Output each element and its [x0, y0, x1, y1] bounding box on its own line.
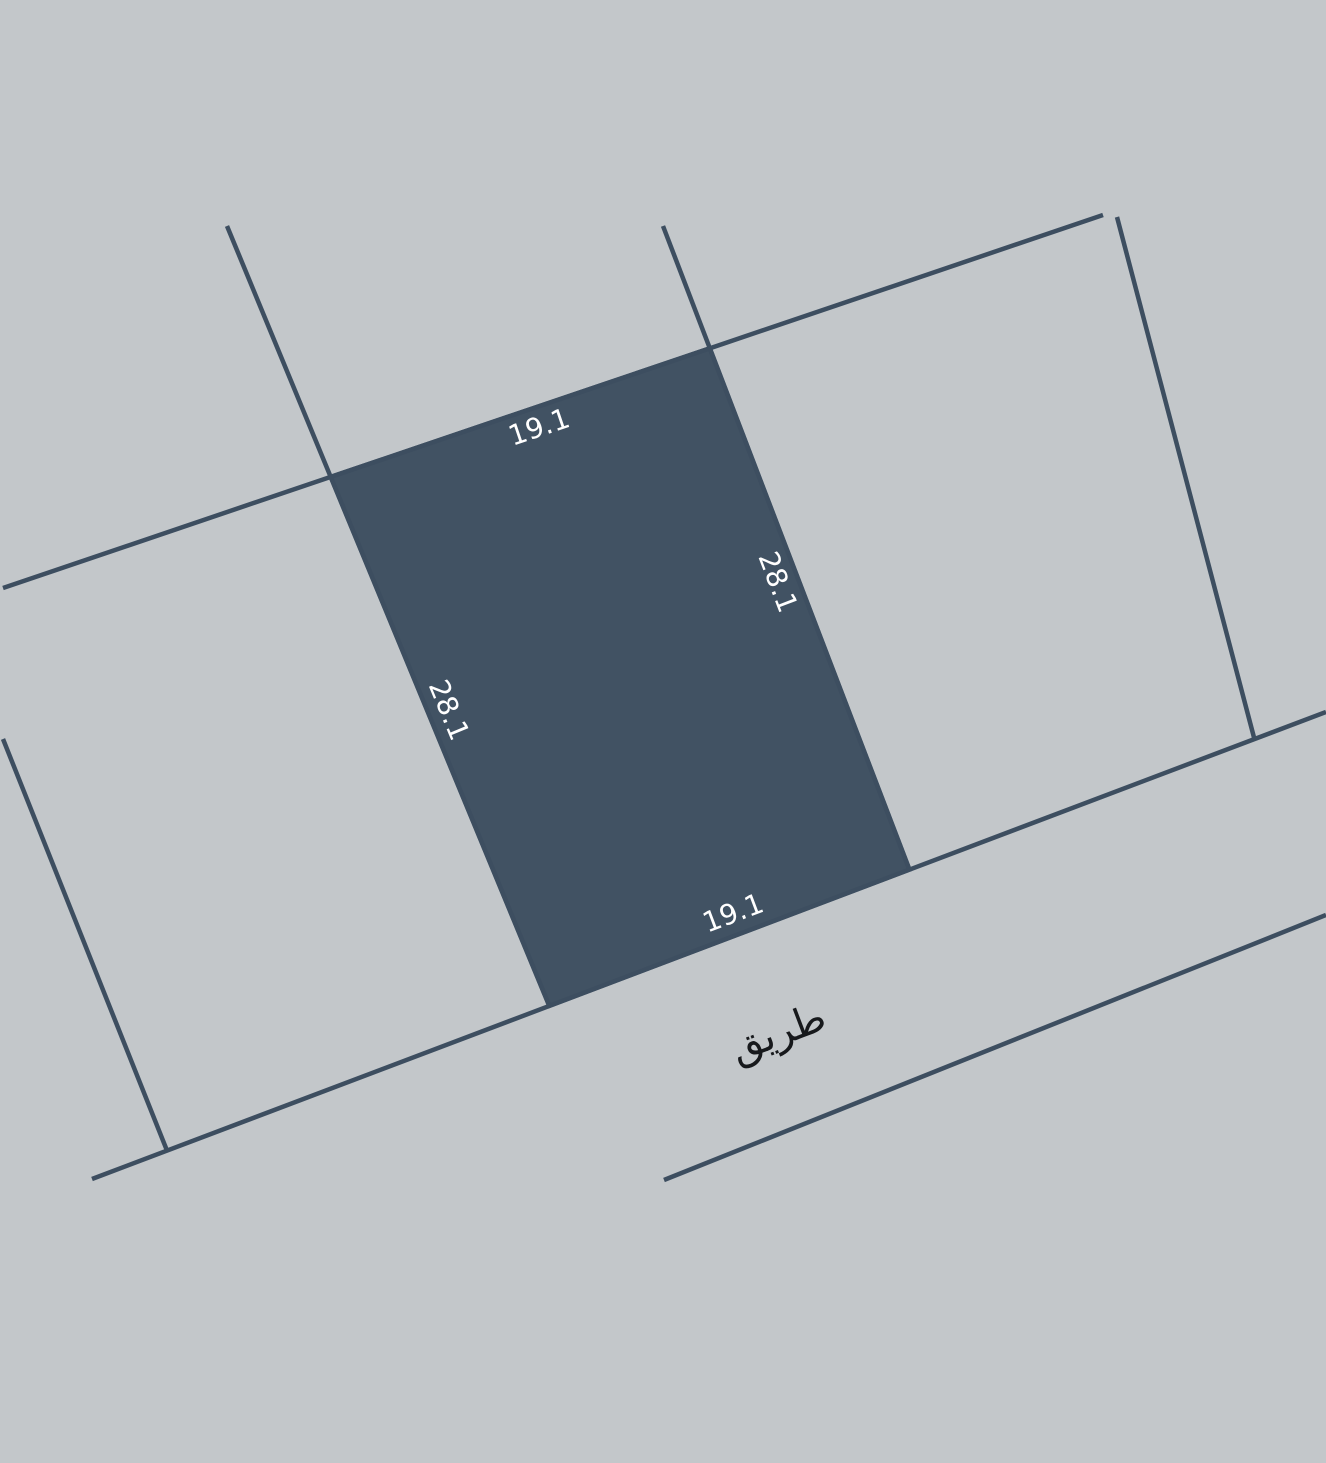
map-viewport[interactable]: 19.128.128.119.1طريق: [0, 0, 1326, 1463]
cadastral-map[interactable]: 19.128.128.119.1طريق: [0, 0, 1326, 1463]
